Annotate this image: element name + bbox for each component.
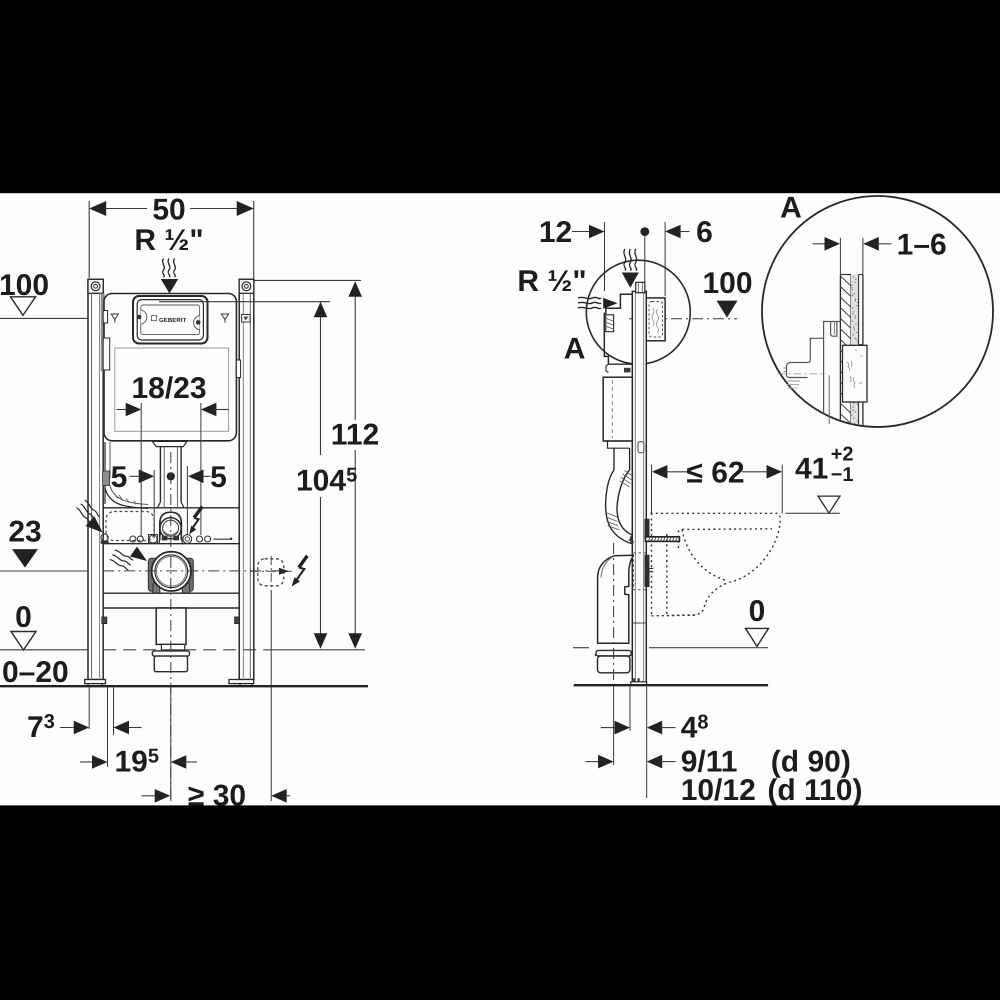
svg-text:−1: −1: [831, 464, 854, 486]
svg-text:12: 12: [539, 216, 572, 249]
svg-text:6: 6: [696, 216, 713, 249]
svg-text:5: 5: [210, 461, 227, 494]
svg-text:≤ 62: ≤ 62: [686, 456, 744, 489]
svg-text:0: 0: [15, 601, 32, 634]
svg-text:(d 110): (d 110): [767, 774, 862, 807]
svg-text:GEBERIT: GEBERIT: [159, 317, 187, 324]
svg-text:A: A: [780, 192, 802, 225]
svg-text:1–6: 1–6: [897, 229, 947, 262]
svg-text:5: 5: [111, 461, 128, 494]
svg-text:18/23: 18/23: [131, 372, 206, 405]
svg-text:23: 23: [8, 515, 41, 548]
svg-text:0–20: 0–20: [2, 656, 69, 689]
svg-text:R ½": R ½": [134, 224, 203, 257]
svg-text:R ½": R ½": [517, 265, 586, 298]
svg-text:10/12: 10/12: [681, 774, 756, 807]
svg-text:100: 100: [702, 267, 752, 300]
svg-text:50: 50: [152, 193, 185, 226]
svg-text:41: 41: [795, 453, 828, 486]
svg-text:0: 0: [749, 595, 766, 628]
svg-text:+2: +2: [831, 444, 854, 466]
svg-text:A: A: [564, 333, 586, 366]
svg-text:112: 112: [331, 419, 379, 452]
